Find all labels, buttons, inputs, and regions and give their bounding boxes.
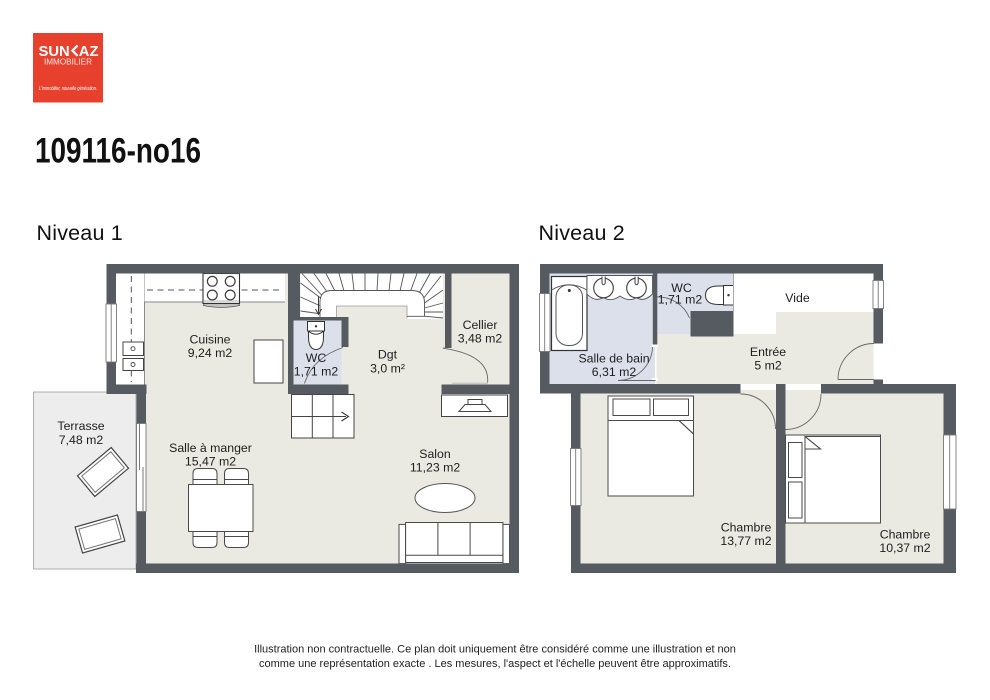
svg-text:WC: WC: [306, 351, 327, 365]
svg-text:Illustration non contractuelle: Illustration non contractuelle. Ce plan …: [254, 644, 736, 656]
svg-text:Chambre: Chambre: [721, 521, 772, 535]
svg-text:13,77 m2: 13,77 m2: [720, 534, 771, 548]
svg-text:5 m2: 5 m2: [754, 359, 781, 373]
svg-text:Salle à manger: Salle à manger: [169, 441, 252, 455]
svg-text:3,0 m²: 3,0 m²: [370, 362, 405, 376]
svg-text:L'immobilier, nouvelle générat: L'immobilier, nouvelle génération.: [39, 86, 97, 92]
svg-text:Chambre: Chambre: [880, 528, 931, 542]
svg-text:6,31 m2: 6,31 m2: [592, 365, 637, 379]
svg-text:Dgt: Dgt: [378, 348, 398, 362]
svg-text:Terrasse: Terrasse: [57, 419, 104, 433]
svg-text:Cellier: Cellier: [463, 318, 498, 332]
svg-text:1,71 m2: 1,71 m2: [294, 365, 339, 379]
svg-text:9,24 m2: 9,24 m2: [188, 346, 233, 360]
svg-text:10,37 m2: 10,37 m2: [879, 541, 930, 555]
svg-text:1,71 m2: 1,71 m2: [658, 293, 703, 307]
svg-text:Salon: Salon: [419, 447, 451, 461]
svg-text:Niveau 1: Niveau 1: [37, 221, 123, 245]
svg-text:Cuisine: Cuisine: [189, 333, 230, 347]
svg-text:IMMOBILIER: IMMOBILIER: [44, 58, 92, 67]
svg-text:Entrée: Entrée: [750, 345, 786, 359]
svg-text:15,47 m2: 15,47 m2: [185, 455, 236, 469]
svg-text:109116-no16: 109116-no16: [35, 132, 201, 171]
svg-text:7,48 m2: 7,48 m2: [59, 433, 104, 447]
svg-text:Niveau 2: Niveau 2: [539, 221, 625, 245]
svg-text:Vide: Vide: [785, 291, 810, 305]
svg-text:comme une représentation exact: comme une représentation exacte . Les me…: [259, 658, 731, 670]
svg-text:Salle de bain: Salle de bain: [578, 352, 649, 366]
svg-text:11,23 m2: 11,23 m2: [410, 461, 461, 475]
svg-text:3,48 m2: 3,48 m2: [458, 332, 503, 346]
